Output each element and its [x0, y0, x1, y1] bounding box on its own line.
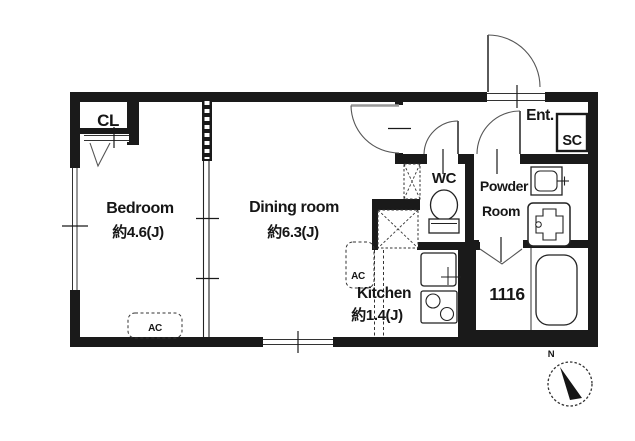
sliding-partition — [196, 161, 219, 337]
entrance-opening — [487, 85, 545, 108]
kitchen-size: 約1.4(J) — [351, 306, 403, 324]
dining-door — [351, 105, 411, 153]
closet-label: CL — [97, 111, 119, 130]
shoe-closet-label: SC — [562, 133, 582, 149]
toilet-icon — [429, 190, 459, 233]
kitchen-sink-icon — [421, 253, 461, 286]
bedroom-size: 約4.6(J) — [112, 223, 164, 241]
dining-room-size: 約6.3(J) — [267, 223, 319, 241]
floorplan-svg: CL Bedroom 約4.6(J) AC Dining room 約6.3(J… — [0, 0, 635, 441]
wc-door — [424, 121, 458, 174]
wc-label: WC — [432, 170, 457, 187]
bath-folding-door — [480, 237, 522, 264]
entrance-label: Ent. — [526, 107, 554, 124]
powder-room-door — [477, 111, 520, 174]
kitchen-label: Kitchen — [357, 285, 411, 302]
bathtub-size-label: 1116 — [489, 284, 525, 304]
bottom-window — [263, 331, 333, 353]
washing-machine-icon — [528, 203, 570, 246]
bathtub-icon — [531, 248, 577, 330]
kitchen-ac-label: AC — [351, 271, 365, 282]
floorplan: CL Bedroom 約4.6(J) AC Dining room 約6.3(J… — [0, 0, 635, 441]
walls — [70, 92, 598, 347]
stove-icon — [421, 291, 457, 323]
bedroom-label: Bedroom — [106, 200, 174, 217]
compass-north-label: N — [548, 349, 555, 360]
washbasin-icon — [531, 167, 569, 195]
bedroom-ac-label: AC — [148, 323, 162, 334]
entrance-door — [488, 35, 540, 92]
powder-room-label-line2: Room — [482, 203, 520, 219]
pipe-shaft-large — [378, 210, 418, 248]
compass-icon — [548, 362, 592, 406]
dining-room-label: Dining room — [249, 199, 339, 216]
powder-room-label-line1: Powder — [480, 178, 529, 194]
left-window — [62, 168, 88, 290]
pipe-shaft-small — [404, 164, 420, 199]
